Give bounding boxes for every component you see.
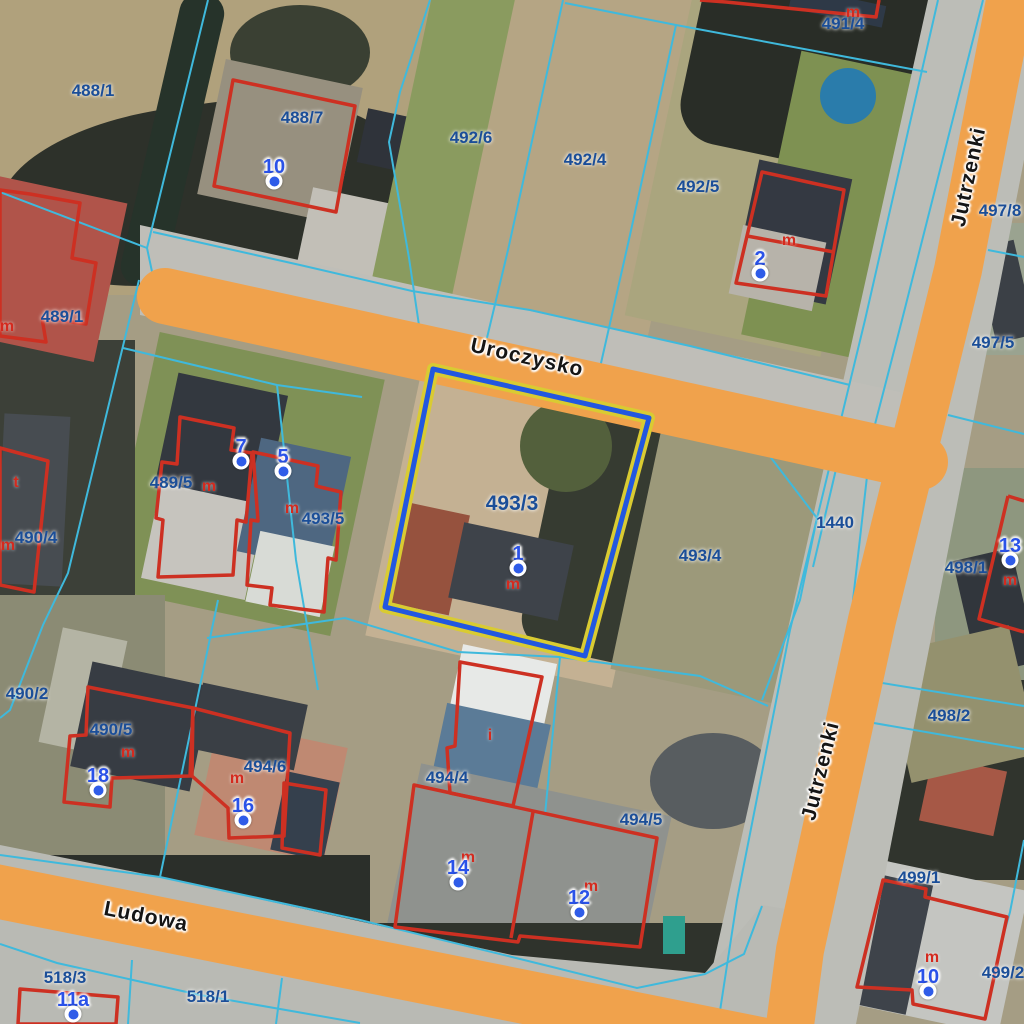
address-marker-1[interactable]: 1: [509, 559, 527, 577]
address-point-icon: [571, 904, 588, 921]
address-marker-16[interactable]: 16: [234, 811, 252, 829]
address-marker-14[interactable]: 14: [449, 873, 467, 891]
address-point-icon: [266, 173, 283, 190]
address-marker-12[interactable]: 12: [570, 903, 588, 921]
address-marker-11a[interactable]: 11a: [64, 1005, 82, 1023]
address-point-icon: [65, 1006, 82, 1023]
address-point-icon: [90, 782, 107, 799]
address-point-icon: [1002, 552, 1019, 569]
address-point-icon: [510, 560, 527, 577]
address-point-icon: [450, 874, 467, 891]
address-marker-2[interactable]: 2: [751, 264, 769, 282]
map-canvas[interactable]: 493/6 UroczyskoJutrzenkiJutrzenkiLudowa4…: [0, 0, 1024, 1024]
address-point-icon: [275, 463, 292, 480]
address-marker-5[interactable]: 5: [274, 462, 292, 480]
address-marker-10[interactable]: 10: [919, 982, 937, 1000]
address-point-icon: [233, 453, 250, 470]
address-point-icon: [920, 983, 937, 1000]
address-marker-13[interactable]: 13: [1001, 551, 1019, 569]
address-point-icon: [752, 265, 769, 282]
address-marker-7[interactable]: 7: [232, 452, 250, 470]
address-point-icon: [235, 812, 252, 829]
address-marker-10[interactable]: 10: [265, 172, 283, 190]
address-marker-18[interactable]: 18: [89, 781, 107, 799]
address-markers-layer: 102751131816141211a10: [0, 0, 1024, 1024]
